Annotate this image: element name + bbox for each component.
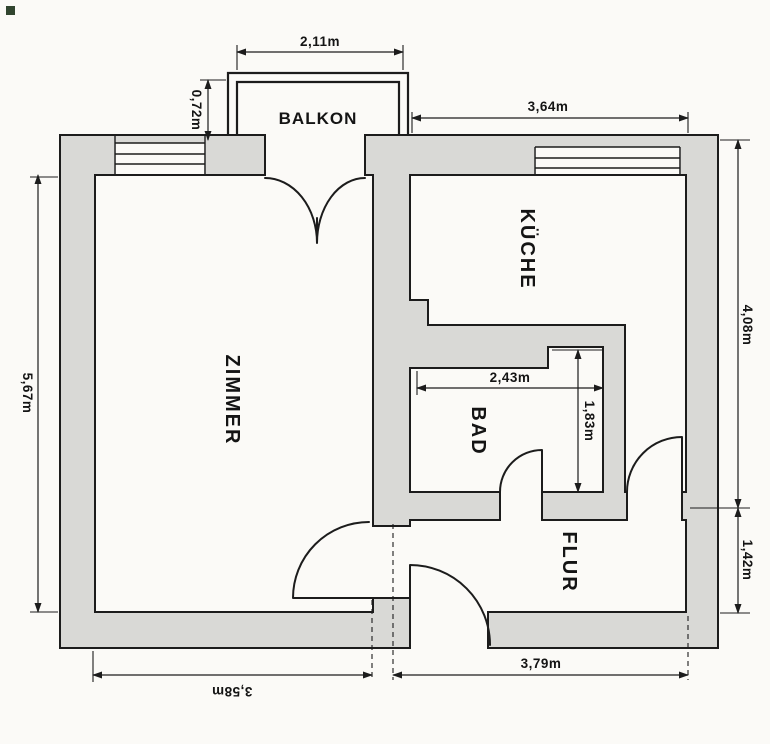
opening-balcony-door: [265, 134, 365, 176]
dim-bad-width: 2,43m: [490, 370, 531, 385]
room-label-bad: BAD: [467, 406, 489, 455]
room-label-kueche: KÜCHE: [516, 208, 539, 289]
room-label-balkon: BALKON: [279, 109, 358, 128]
dim-kitchen-width: 3,64m: [528, 99, 569, 114]
dim-balcony-width: 2,11m: [300, 34, 340, 49]
dim-zimmer-height: 5,67m: [20, 373, 35, 414]
floor-plan-page: 2,11m 0,72m 3,64m 5,67m 4,08m 1,42m 2,43…: [0, 0, 770, 744]
room-label-flur: FLUR: [558, 531, 580, 592]
opening-zimmer-flur-door: [372, 526, 411, 598]
room-label-zimmer: ZIMMER: [221, 355, 243, 446]
bad-door: [500, 450, 542, 492]
opening-bad-door: [500, 491, 542, 521]
dim-bad-height: 1,83m: [582, 401, 597, 442]
opening-entrance-door: [410, 611, 488, 649]
dim-kitchen-height: 4,08m: [740, 305, 755, 346]
wall-left: [60, 135, 95, 648]
dim-balcony-depth: 0,72m: [189, 90, 204, 131]
balcony-french-door: [265, 178, 365, 243]
wall-right: [686, 135, 718, 648]
dim-flur-height: 1,42m: [740, 540, 755, 581]
opening-window-zimmer: [116, 143, 204, 175]
floor-plan-canvas: 2,11m 0,72m 3,64m 5,67m 4,08m 1,42m 2,43…: [0, 0, 770, 744]
wall-bottom: [60, 612, 718, 648]
dim-zimmer-width: 3,58m: [212, 684, 253, 699]
outline-flur: [410, 520, 686, 612]
wall-kitchen-step: [410, 300, 428, 325]
zimmer-flur-door: [293, 522, 373, 598]
scan-artifact-mark: [6, 6, 15, 15]
opening-window-kueche: [536, 147, 679, 175]
kueche-door: [627, 437, 682, 492]
dim-flur-width: 3,79m: [521, 656, 562, 671]
opening-kueche-door: [627, 491, 682, 521]
